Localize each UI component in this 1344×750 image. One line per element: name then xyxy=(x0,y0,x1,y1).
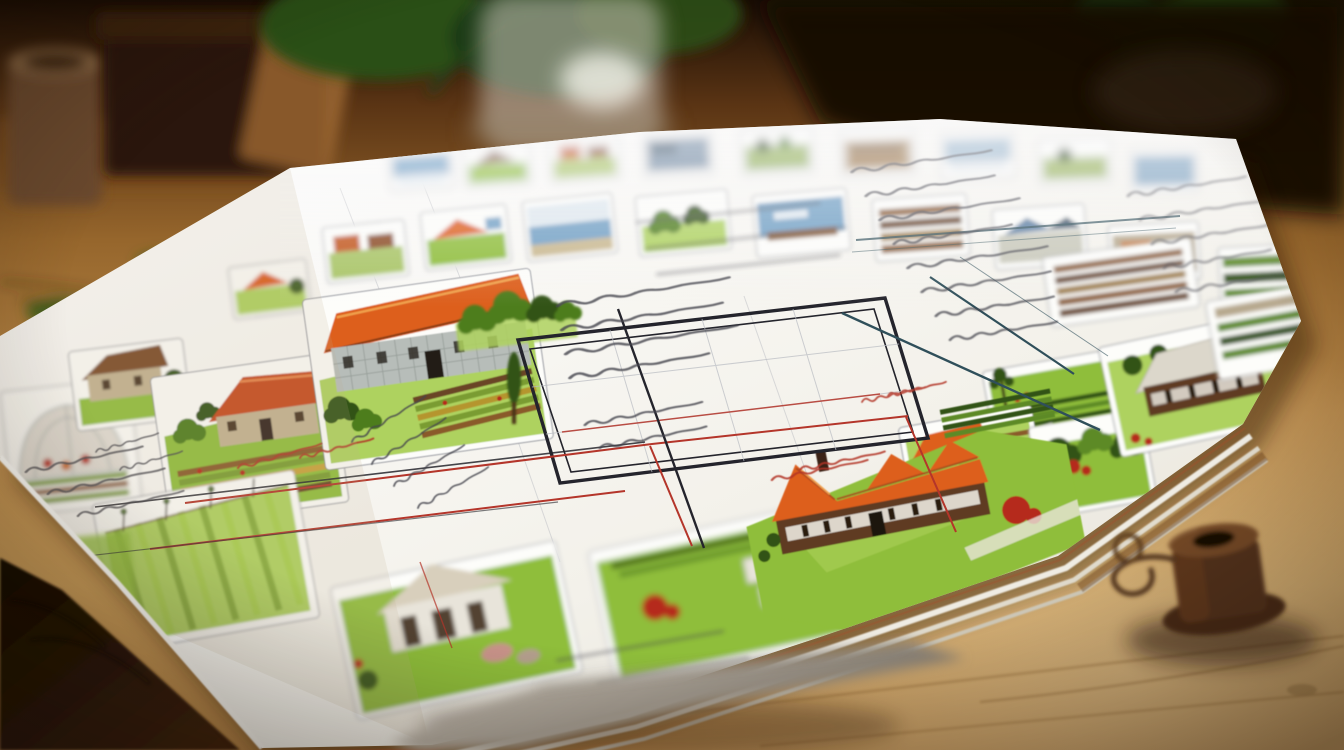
illustrated-garden-plan-photo xyxy=(0,0,1344,750)
photo-scene xyxy=(0,0,1344,750)
photo-vignette-shade xyxy=(0,0,1344,750)
